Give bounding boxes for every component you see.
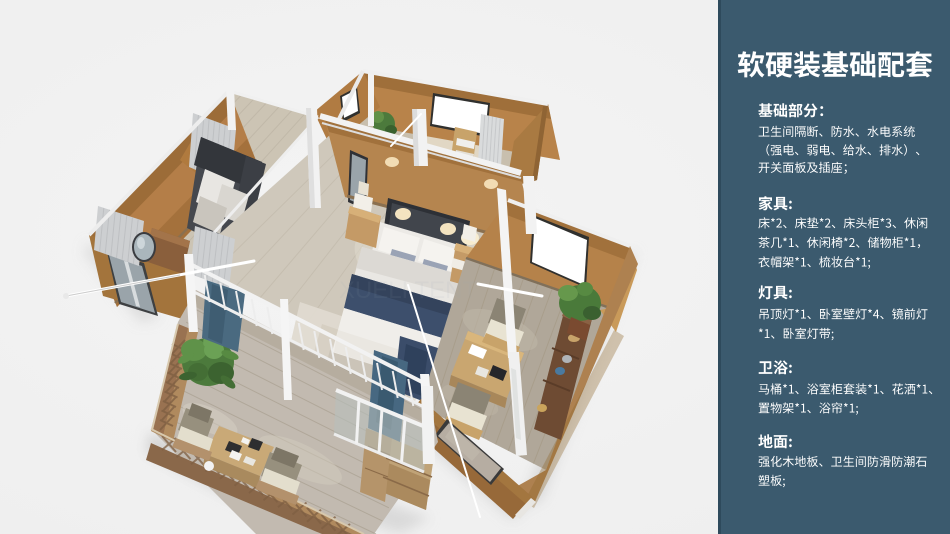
svg-text:XUELI TENT: XUELI TENT bbox=[339, 277, 478, 304]
